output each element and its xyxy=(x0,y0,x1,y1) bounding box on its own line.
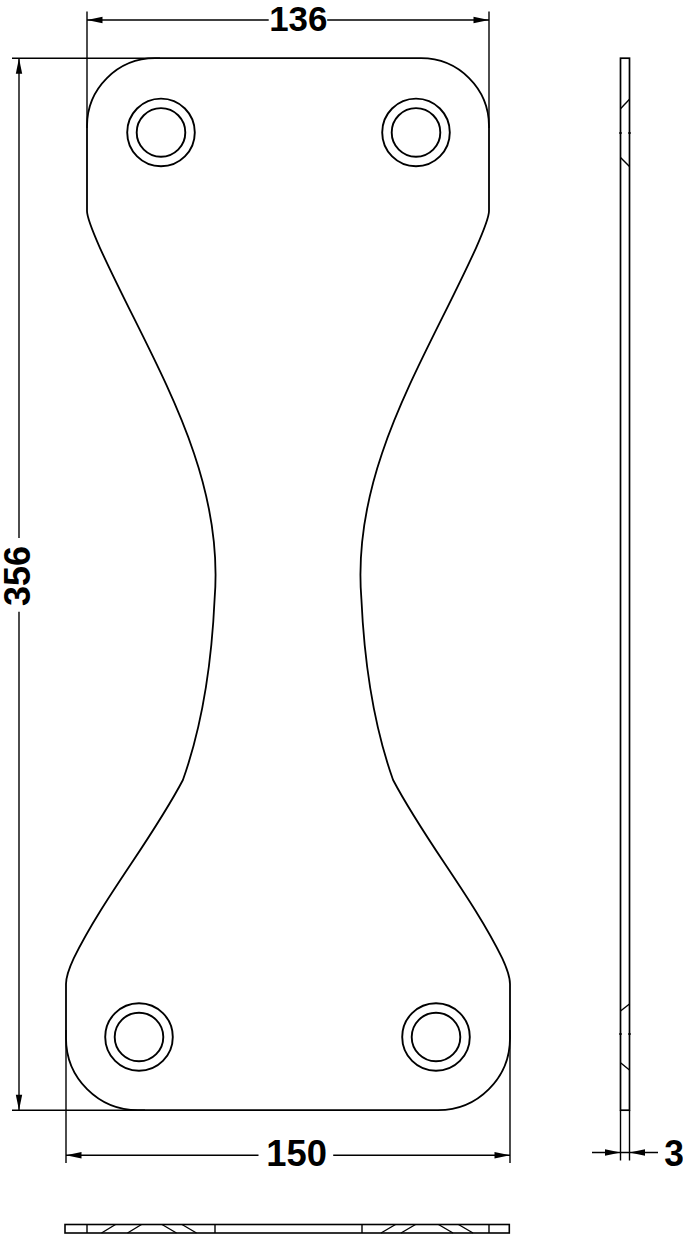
svg-text:3: 3 xyxy=(664,1132,683,1174)
svg-text:150: 150 xyxy=(266,1133,327,1175)
svg-text:356: 356 xyxy=(0,546,38,606)
svg-text:136: 136 xyxy=(269,0,327,39)
